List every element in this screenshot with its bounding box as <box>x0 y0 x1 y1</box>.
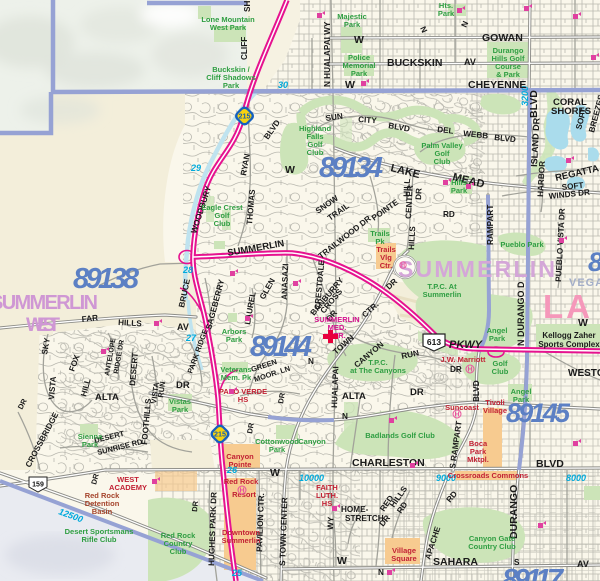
svg-text:N HUALAPAI WY: N HUALAPAI WY <box>323 21 332 87</box>
svg-text:RAMPART: RAMPART <box>486 205 495 245</box>
svg-text:Basin: Basin <box>92 507 113 516</box>
svg-text:WEST: WEST <box>26 315 64 336</box>
svg-text:W: W <box>270 467 280 479</box>
svg-text:DURANGO: DURANGO <box>508 485 520 539</box>
svg-text:Badlands Golf Club: Badlands Golf Club <box>365 431 435 440</box>
svg-text:PKWY: PKWY <box>449 339 484 351</box>
svg-text:Summerlin: Summerlin <box>222 536 261 545</box>
svg-text:Park: Park <box>82 440 99 449</box>
svg-text:AV: AV <box>577 559 589 569</box>
svg-text:Mem. Pk: Mem. Pk <box>221 373 252 382</box>
svg-text:ALTA: ALTA <box>95 392 119 403</box>
svg-text:Park: Park <box>451 186 468 195</box>
svg-text:Park: Park <box>269 445 286 454</box>
svg-text:Country Club: Country Club <box>468 542 516 551</box>
svg-text:W: W <box>578 317 588 329</box>
svg-text:Park: Park <box>172 405 189 414</box>
svg-text:CITY: CITY <box>358 115 378 125</box>
svg-text:215: 215 <box>239 112 251 121</box>
svg-text:DR: DR <box>414 188 424 200</box>
svg-text:29: 29 <box>190 163 201 173</box>
svg-text:Park: Park <box>226 335 243 344</box>
svg-text:RD: RD <box>443 210 455 219</box>
svg-text:89134: 89134 <box>319 152 383 184</box>
svg-text:DR: DR <box>190 500 200 512</box>
svg-text:Square: Square <box>391 554 416 563</box>
svg-text:89144: 89144 <box>250 331 312 363</box>
svg-text:HOME-: HOME- <box>341 505 369 514</box>
svg-text:HUALAPAI: HUALAPAI <box>330 366 340 408</box>
svg-text:S: S <box>514 558 520 567</box>
svg-text:Club: Club <box>434 157 451 166</box>
svg-text:WESTC: WESTC <box>568 368 600 379</box>
svg-text:10000: 10000 <box>299 473 324 483</box>
svg-text:GOWAN: GOWAN <box>482 32 523 44</box>
svg-text:159: 159 <box>32 482 44 489</box>
svg-text:SAHARA: SAHARA <box>433 556 478 568</box>
svg-text:& Park: & Park <box>496 70 521 79</box>
svg-text:Crossroads Commons: Crossroads Commons <box>448 471 528 480</box>
svg-text:BUCKSKIN: BUCKSKIN <box>387 57 442 69</box>
svg-text:89138: 89138 <box>73 263 140 295</box>
svg-text:Mktpl.: Mktpl. <box>467 455 489 464</box>
svg-text:Sports Complex: Sports Complex <box>538 340 600 349</box>
svg-text:8000: 8000 <box>566 473 586 483</box>
svg-text:N DURANGO D: N DURANGO D <box>516 281 526 346</box>
svg-text:Suncoast: Suncoast <box>445 403 479 412</box>
svg-text:N: N <box>342 412 348 421</box>
svg-text:BLVD: BLVD <box>472 380 481 402</box>
svg-text:DR: DR <box>176 380 190 391</box>
svg-text:Club: Club <box>307 148 324 157</box>
svg-text:SUMMERLIN: SUMMERLIN <box>398 256 558 282</box>
svg-text:Red Rock: Red Rock <box>224 477 259 486</box>
svg-text:CHEYENNE: CHEYENNE <box>468 79 526 91</box>
svg-text:FAR: FAR <box>81 313 98 324</box>
svg-text:Ctr.: Ctr. <box>380 261 393 270</box>
svg-text:H: H <box>239 488 244 495</box>
svg-text:DEL: DEL <box>437 125 454 136</box>
svg-text:Summerlin: Summerlin <box>423 290 462 299</box>
svg-text:DR: DR <box>450 365 462 374</box>
svg-text:at The Canyons: at The Canyons <box>350 366 406 375</box>
svg-text:W: W <box>345 79 355 91</box>
svg-text:BLVD: BLVD <box>536 458 564 470</box>
svg-text:Club: Club <box>492 367 509 376</box>
svg-text:H: H <box>467 367 472 374</box>
svg-text:Rifle Club: Rifle Club <box>82 535 117 544</box>
svg-text:Park: Park <box>344 20 361 29</box>
svg-text:28: 28 <box>182 265 193 275</box>
svg-text:HS: HS <box>238 395 248 404</box>
svg-text:CLIFF: CLIFF <box>240 37 249 60</box>
svg-text:HS: HS <box>322 499 332 508</box>
svg-text:N: N <box>378 568 384 577</box>
svg-text:Park: Park <box>513 395 530 404</box>
svg-text:AV: AV <box>464 57 476 67</box>
svg-text:Pueblo Park: Pueblo Park <box>500 240 544 249</box>
svg-text:VEGA: VEGA <box>569 277 600 289</box>
svg-text:Club: Club <box>214 219 231 228</box>
svg-text:Kellogg Zaher: Kellogg Zaher <box>542 331 595 340</box>
svg-text:CENTER: CENTER <box>404 185 415 219</box>
svg-text:HILLS: HILLS <box>118 318 143 328</box>
svg-text:215: 215 <box>214 430 226 439</box>
svg-text:West Park: West Park <box>210 23 247 32</box>
svg-text:AV: AV <box>177 322 189 332</box>
svg-text:DR: DR <box>410 387 424 398</box>
svg-text:WY: WY <box>326 516 335 530</box>
svg-text:Canyon: Canyon <box>298 437 326 446</box>
svg-text:Pointe: Pointe <box>229 460 252 469</box>
svg-text:H: H <box>401 263 405 269</box>
svg-text:Village: Village <box>483 406 507 415</box>
svg-text:W: W <box>285 164 295 176</box>
svg-text:613: 613 <box>427 337 441 347</box>
svg-text:W: W <box>354 34 364 46</box>
svg-text:N: N <box>308 357 314 366</box>
svg-text:89117: 89117 <box>502 564 565 581</box>
svg-text:BLVD: BLVD <box>528 90 540 118</box>
svg-text:ANASAZI: ANASAZI <box>280 263 290 300</box>
svg-text:Park: Park <box>223 81 240 90</box>
svg-text:30: 30 <box>278 80 288 90</box>
svg-text:27: 27 <box>185 333 197 343</box>
svg-text:J.W. Marriott: J.W. Marriott <box>440 355 486 364</box>
svg-text:Park: Park <box>489 334 506 343</box>
svg-text:25: 25 <box>231 568 243 578</box>
svg-text:SH: SH <box>243 1 252 12</box>
svg-text:SUMMERLIN: SUMMERLIN <box>0 292 102 314</box>
svg-text:Park: Park <box>438 9 455 18</box>
svg-text:W: W <box>337 555 347 567</box>
svg-text:HILLS: HILLS <box>407 225 417 250</box>
svg-text:Park: Park <box>351 69 368 78</box>
svg-text:ALTA: ALTA <box>342 391 366 402</box>
svg-text:Club: Club <box>170 547 187 556</box>
svg-text:H: H <box>454 412 459 419</box>
svg-text:8: 8 <box>588 247 600 277</box>
